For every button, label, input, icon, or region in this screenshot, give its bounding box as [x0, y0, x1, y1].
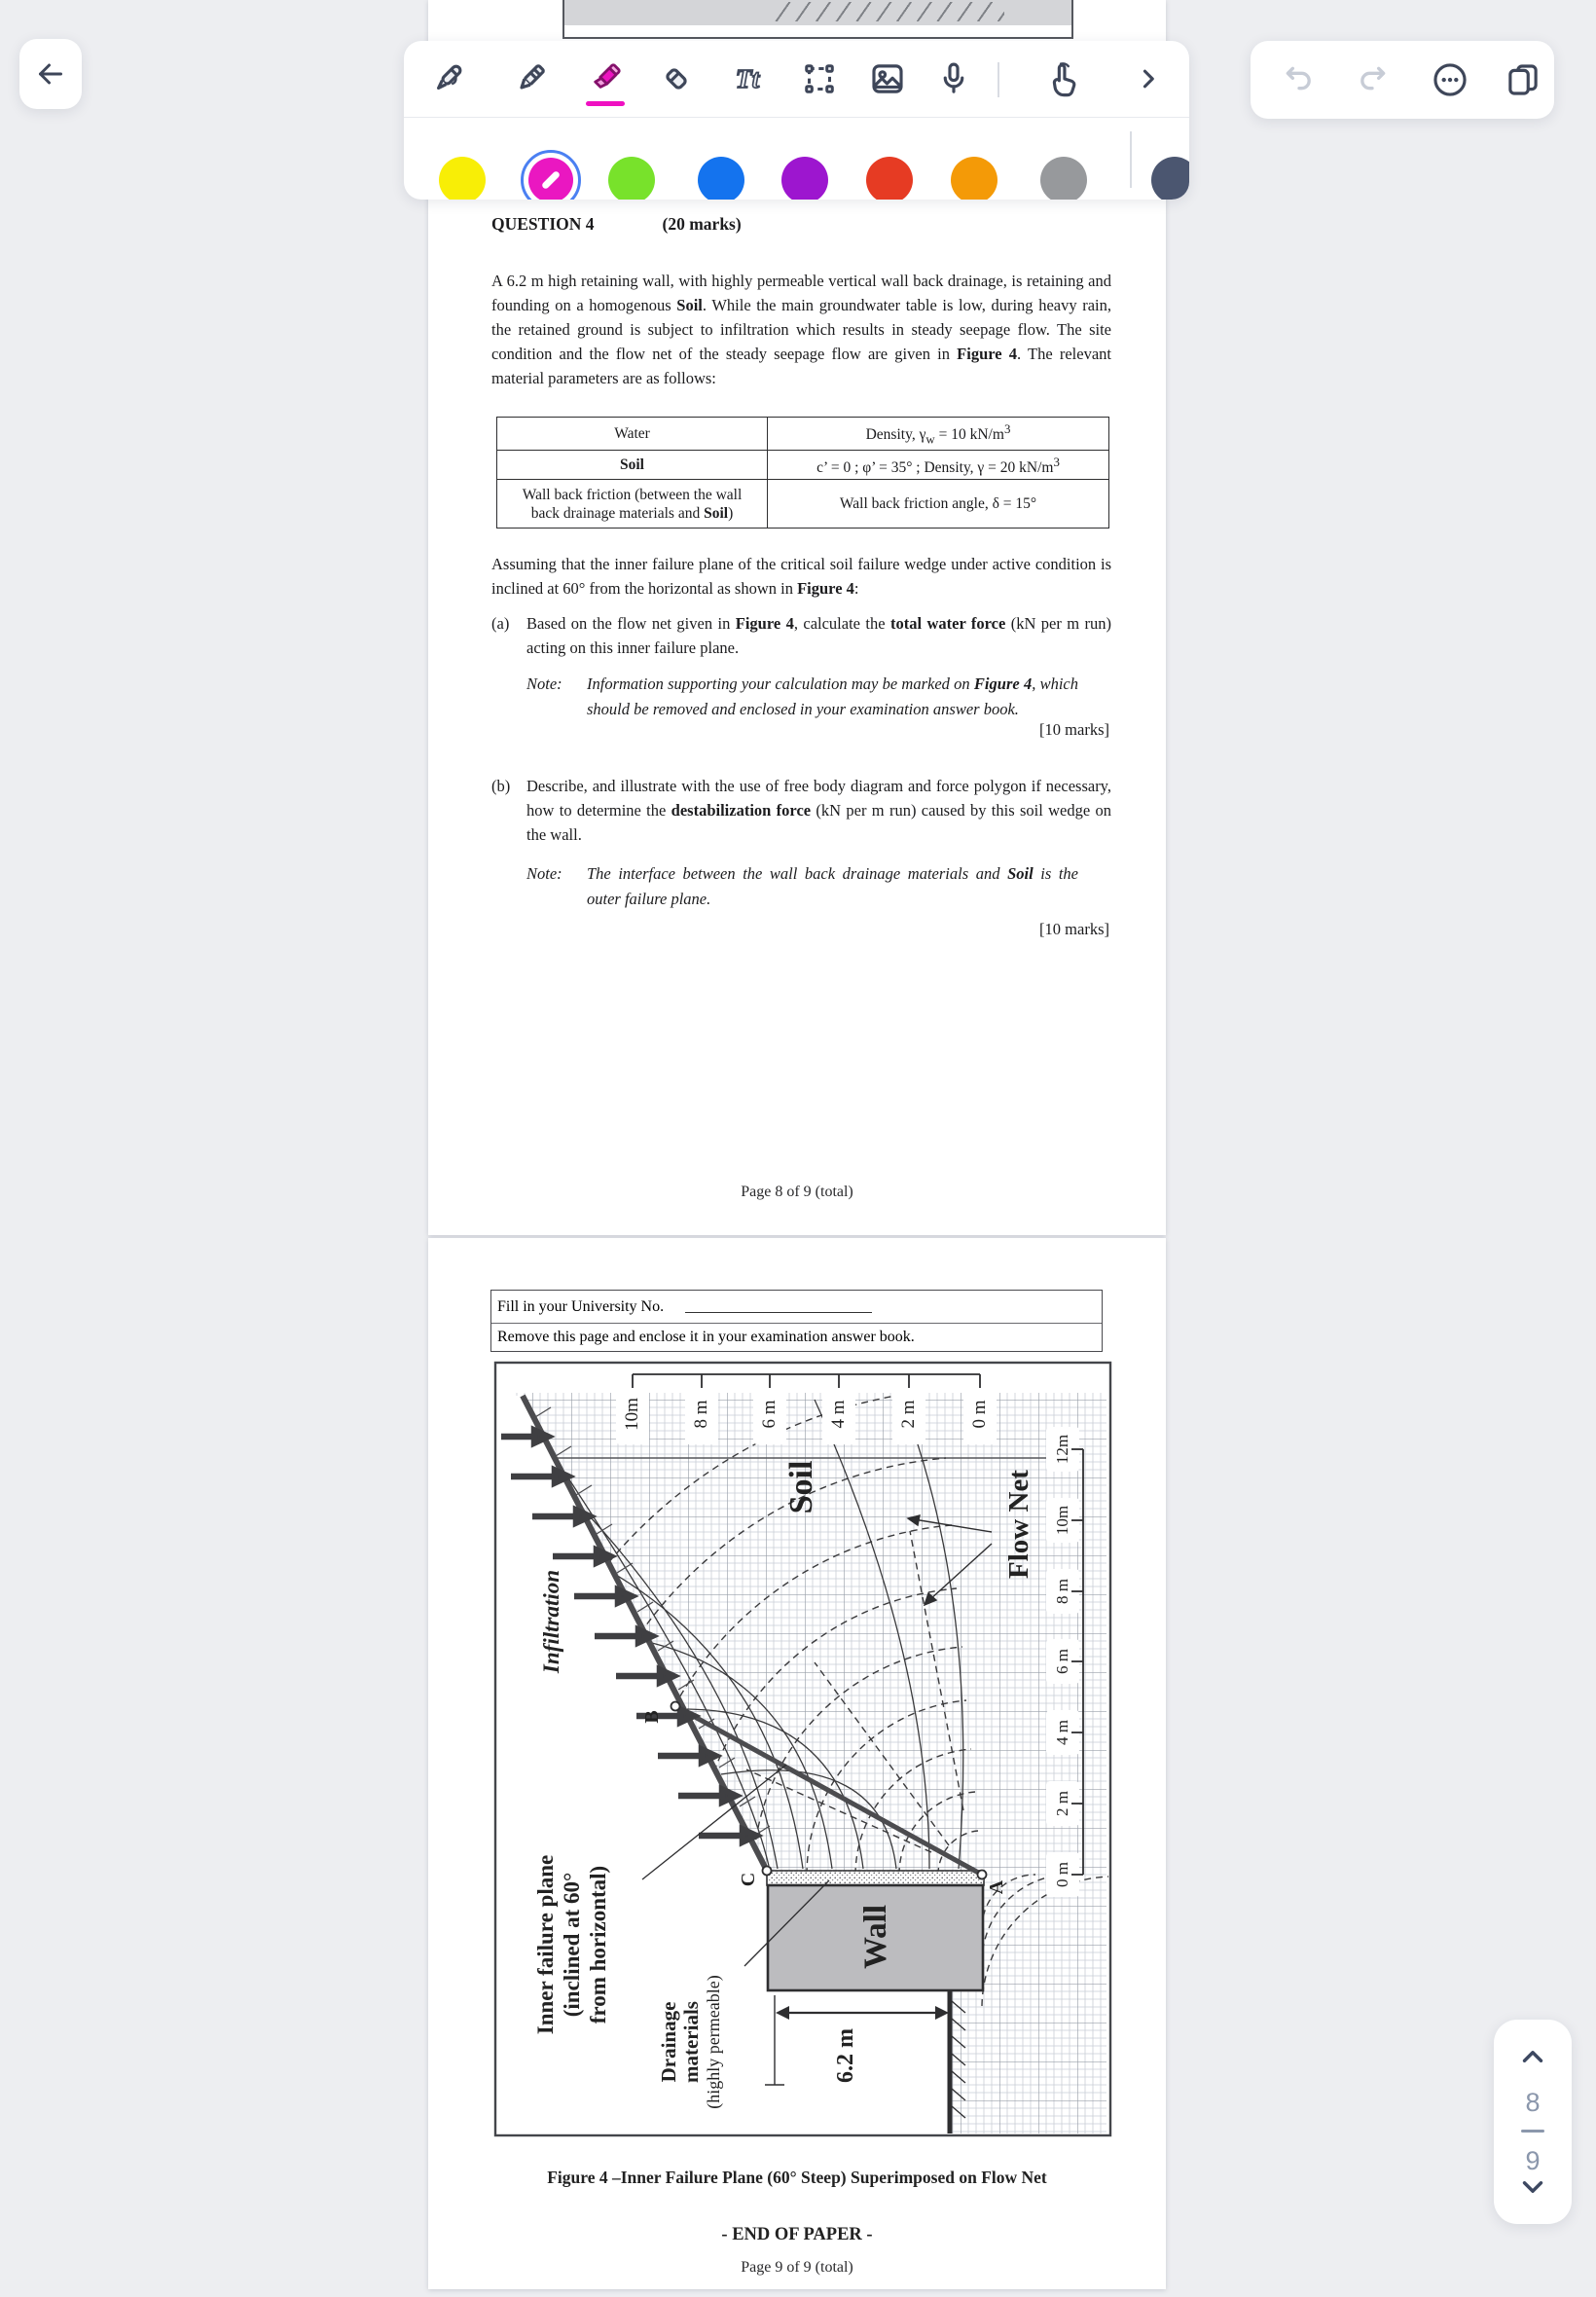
marks-b: [10 marks] [1039, 920, 1109, 939]
hand-pointer-icon [1045, 58, 1086, 99]
back-button[interactable] [19, 39, 82, 109]
top-scale-label: 0 m [968, 1385, 992, 1443]
top-scale-label: 2 m [897, 1385, 921, 1443]
point-c-label: C [734, 1865, 763, 1894]
note-b: Note: The interface between the wall bac… [526, 861, 1111, 912]
text-tool-icon: Tt [726, 57, 769, 100]
question-marks: (20 marks) [663, 214, 742, 234]
page-navigator: 8 9 [1494, 2020, 1572, 2224]
lasso-select-icon [799, 58, 840, 99]
more-options-icon [1430, 59, 1470, 100]
chevron-down-icon [1516, 2170, 1549, 2204]
copy-icon [1503, 59, 1543, 100]
color-row-divider [1130, 131, 1132, 188]
highlighter-tool-button[interactable] [582, 53, 629, 105]
image-tool-button[interactable] [864, 53, 911, 105]
assuming-paragraph: Assuming that the inner failure plane of… [491, 552, 1111, 601]
dimension-label: 6.2 m [807, 2017, 885, 2095]
drainage-materials-label: Drainagematerials(highly permeable) [657, 1945, 725, 2139]
top-scale-label: 6 m [758, 1385, 781, 1443]
copy-page-button[interactable] [1496, 53, 1550, 107]
end-of-paper: - END OF PAPER - [428, 2225, 1166, 2245]
table-row: Wall back friction (between the wallback… [497, 480, 1109, 529]
page-footer: Page 8 of 9 (total) [428, 1184, 1166, 1201]
next-page-button[interactable] [1509, 2168, 1556, 2206]
note-a: Note: Information supporting your calcul… [526, 672, 1111, 722]
current-page-number: 8 [1494, 2088, 1572, 2118]
undo-icon [1280, 60, 1319, 99]
fill-in-label: Fill in your University No. [497, 1298, 664, 1315]
pen-icon [427, 58, 468, 99]
more-options-button[interactable] [1423, 53, 1477, 107]
chevron-right-icon [1132, 62, 1165, 95]
pencil-icon [510, 58, 551, 99]
item-a: (a) Based on the flow net given in Figur… [491, 611, 1111, 660]
table-cell: Wall back friction angle, δ = 15° [768, 480, 1109, 529]
wall-label: Wall [832, 1893, 920, 1981]
toolbar-divider [997, 62, 999, 97]
question-number: QUESTION 4 [491, 214, 595, 234]
soil-label: Soil [763, 1443, 841, 1531]
point-b-label: B [637, 1702, 667, 1732]
color-swatch-green[interactable] [608, 157, 655, 200]
flow-net-label: Flow Net [951, 1456, 1087, 1592]
chevron-up-icon [1516, 2040, 1549, 2073]
document-page-9: Fill in your University No. Remove this … [428, 1238, 1166, 2289]
table-cell: Water [497, 418, 768, 451]
custom-color-picker[interactable] [1151, 157, 1189, 200]
parameters-table: Water Density, γw = 10 kN/m3 Soil c’ = 0… [496, 417, 1109, 529]
color-swatch-red[interactable] [866, 157, 913, 200]
table-cell: Soil [497, 451, 768, 480]
color-swatch-yellow[interactable] [439, 157, 486, 200]
undo-button[interactable] [1272, 53, 1326, 107]
inner-failure-plane-label: Inner failure plane(inclined at 60°from … [530, 1799, 612, 2091]
selected-tool-indicator [586, 101, 625, 106]
remove-instruction: Remove this page and enclose it in your … [491, 1324, 1102, 1351]
audio-tool-button[interactable] [930, 53, 977, 105]
redo-icon [1353, 60, 1392, 99]
page-divider [1521, 2130, 1544, 2133]
figure-caption: Figure 4 –Inner Failure Plane (60° Steep… [428, 2168, 1166, 2188]
previous-page-button[interactable] [1509, 2037, 1556, 2076]
lasso-tool-button[interactable] [796, 53, 843, 105]
question-heading: QUESTION 4(20 marks) [491, 214, 742, 235]
eraser-tool-button[interactable] [653, 53, 700, 105]
color-swatch-gray[interactable] [1040, 157, 1087, 200]
back-arrow-icon [33, 56, 68, 91]
table-cell: c’ = 0 ; φ’ = 35° ; Density, γ = 20 kN/m… [768, 451, 1109, 480]
university-no-box: Fill in your University No. Remove this … [490, 1290, 1103, 1352]
svg-text:Tt: Tt [736, 63, 761, 93]
image-icon [867, 58, 908, 99]
top-scale-label: 4 m [827, 1385, 851, 1443]
color-swatch-magenta-selected[interactable] [521, 150, 581, 200]
university-no-field [685, 1312, 872, 1313]
eraser-icon [656, 58, 697, 99]
color-swatch-orange[interactable] [951, 157, 997, 200]
previous-figure-fragment [562, 0, 1073, 39]
microphone-icon [933, 58, 974, 99]
table-row: Water Density, γw = 10 kN/m3 [497, 418, 1109, 451]
question-intro: A 6.2 m high retaining wall, with highly… [491, 269, 1111, 390]
color-swatch-purple[interactable] [781, 157, 828, 200]
point-a-label: A [982, 1873, 1011, 1902]
item-b: (b) Describe, and illustrate with the us… [491, 774, 1111, 847]
color-swatch-blue[interactable] [698, 157, 744, 200]
pencil-tool-button[interactable] [507, 53, 554, 105]
text-tool-button[interactable]: Tt [724, 53, 771, 105]
page-footer: Page 9 of 9 (total) [428, 2259, 1166, 2277]
marks-a: [10 marks] [1039, 720, 1109, 740]
table-cell: Wall back friction (between the wallback… [497, 480, 768, 529]
right-scale-label: 2 m [1052, 1774, 1073, 1833]
annotation-toolbar: Tt [404, 41, 1189, 200]
highlighter-icon [585, 58, 626, 99]
table-cell: Density, γw = 10 kN/m3 [768, 418, 1109, 451]
pen-tool-button[interactable] [424, 53, 471, 105]
right-scale-label: 6 m [1052, 1632, 1073, 1691]
pointer-tool-button[interactable] [1042, 53, 1089, 105]
top-scale-label: 8 m [690, 1385, 713, 1443]
expand-toolbar-button[interactable] [1125, 53, 1172, 105]
table-row: Soil c’ = 0 ; φ’ = 35° ; Density, γ = 20… [497, 451, 1109, 480]
hatch-pattern [771, 2, 1004, 21]
infiltration-label: Infiltration [484, 1553, 620, 1690]
document-actions-bar [1251, 41, 1554, 119]
right-scale-label: 4 m [1052, 1703, 1073, 1762]
pen-mark-icon [541, 170, 562, 191]
redo-button[interactable] [1345, 53, 1399, 107]
figure-4-flow-net: 10m 8 m 6 m 4 m 2 m 0 m 12m 10m 8 m 6 m … [493, 1361, 1112, 2139]
top-scale-label: 10m [621, 1385, 644, 1443]
right-scale-label: 0 m [1052, 1845, 1073, 1904]
